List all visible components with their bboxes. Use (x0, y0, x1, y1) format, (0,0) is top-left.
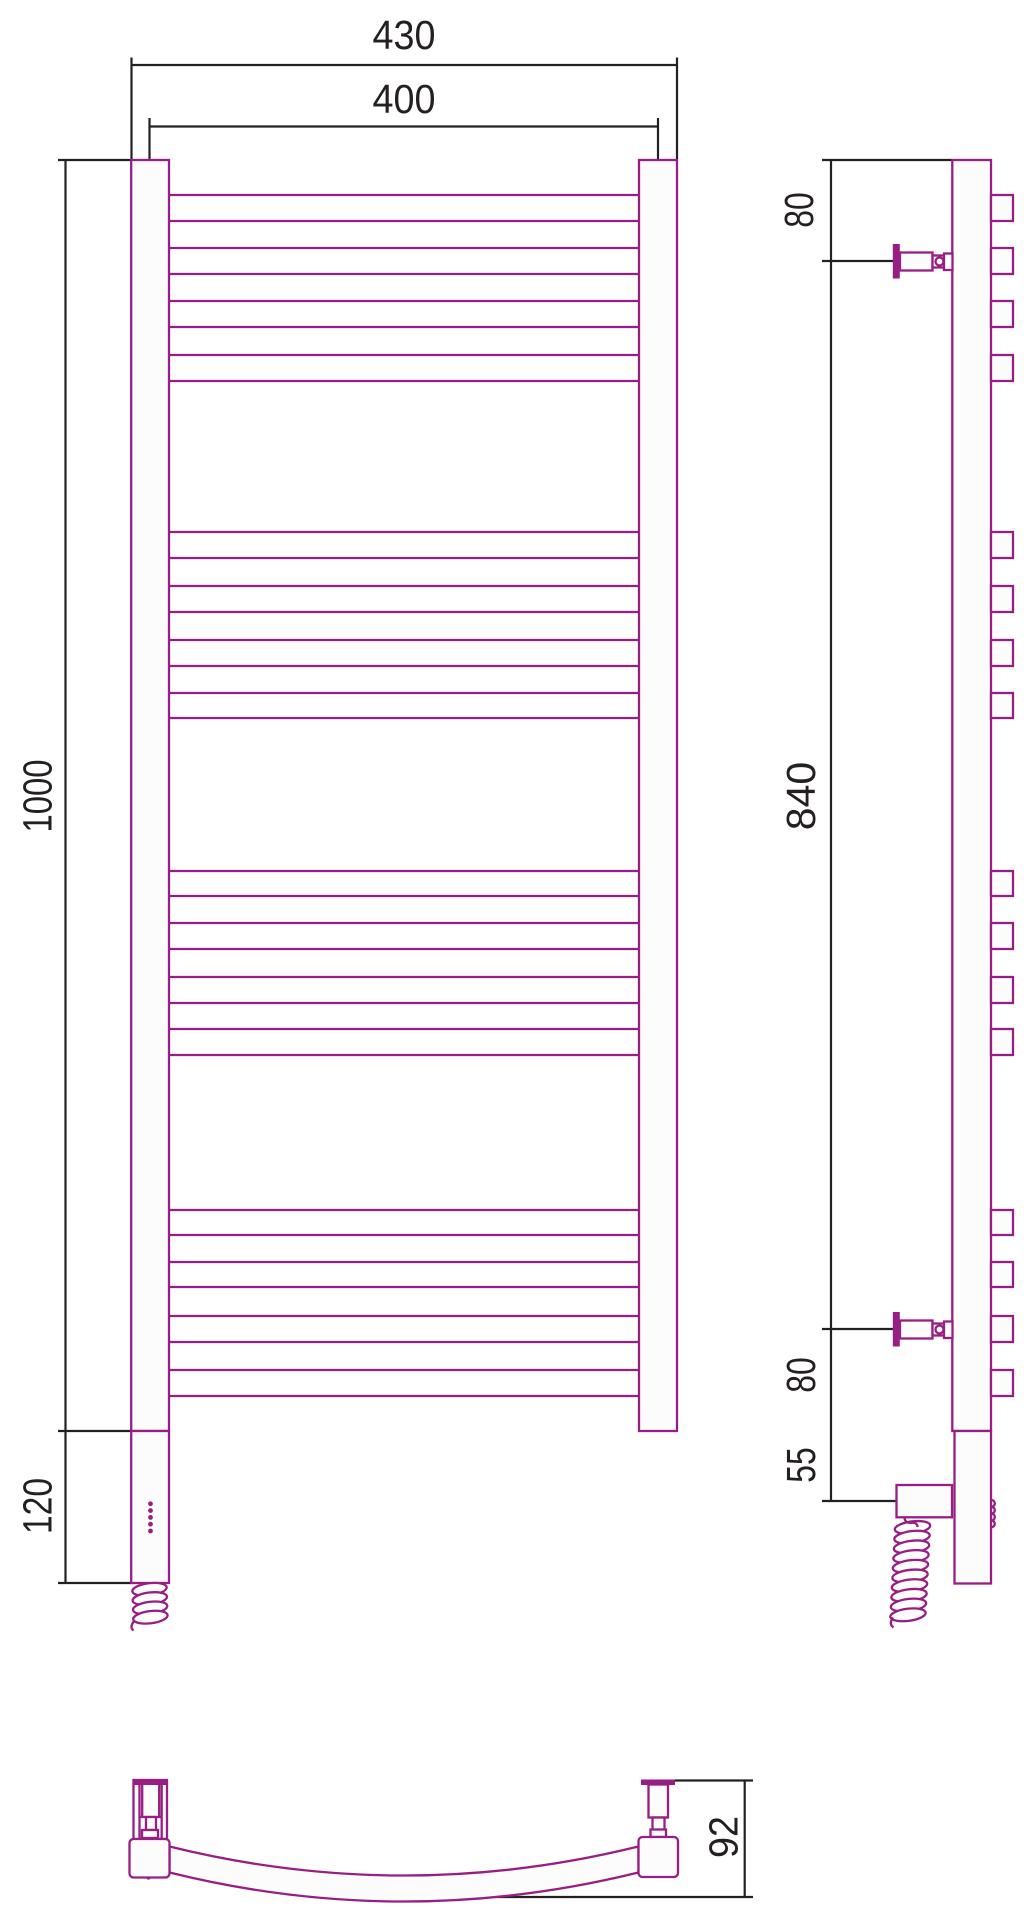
svg-text:80: 80 (776, 192, 822, 228)
svg-text:840: 840 (778, 762, 824, 830)
svg-text:400: 400 (373, 77, 436, 123)
svg-text:430: 430 (373, 13, 436, 59)
svg-text:92: 92 (701, 1816, 747, 1858)
svg-text:55: 55 (778, 1447, 824, 1483)
svg-text:120: 120 (14, 1478, 60, 1534)
svg-text:80: 80 (778, 1357, 824, 1393)
svg-text:1000: 1000 (14, 760, 60, 833)
